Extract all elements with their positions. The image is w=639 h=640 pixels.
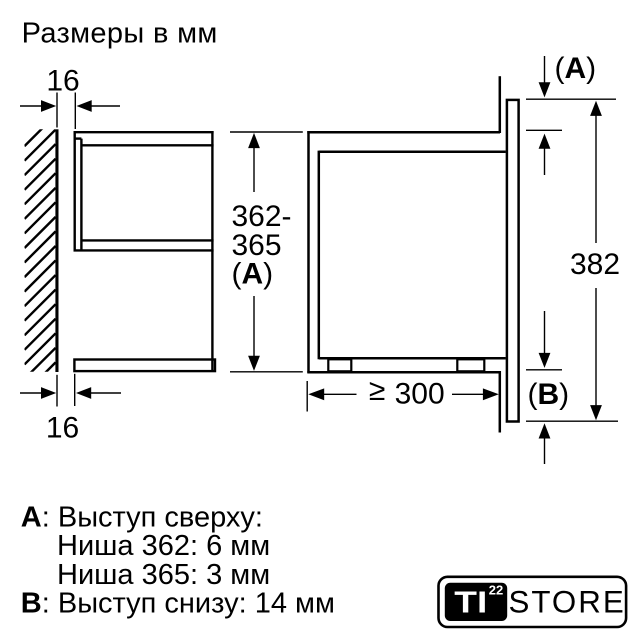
svg-text:STORE: STORE: [509, 584, 626, 619]
svg-text:A: Выступ сверху:: A: Выступ сверху:: [21, 501, 263, 533]
svg-text:16: 16: [46, 64, 79, 97]
svg-text:(B): (B): [528, 378, 570, 411]
svg-text:TI: TI: [454, 584, 487, 619]
svg-text:16: 16: [46, 412, 79, 445]
svg-text:B: Выступ снизу: 14 мм: B: Выступ снизу: 14 мм: [21, 588, 335, 620]
svg-text:300: 300: [395, 378, 445, 411]
svg-text:Ниша 362: 6 мм: Ниша 362: 6 мм: [57, 530, 270, 562]
svg-text:≥: ≥: [369, 374, 385, 407]
svg-text:(A): (A): [232, 258, 274, 291]
svg-text:Размеры в мм: Размеры в мм: [22, 18, 218, 50]
svg-text:22: 22: [489, 582, 503, 597]
svg-text:Ниша 365: 3 мм: Ниша 365: 3 мм: [57, 559, 270, 591]
svg-text:(A): (A): [555, 52, 597, 85]
svg-text:382: 382: [570, 248, 620, 281]
